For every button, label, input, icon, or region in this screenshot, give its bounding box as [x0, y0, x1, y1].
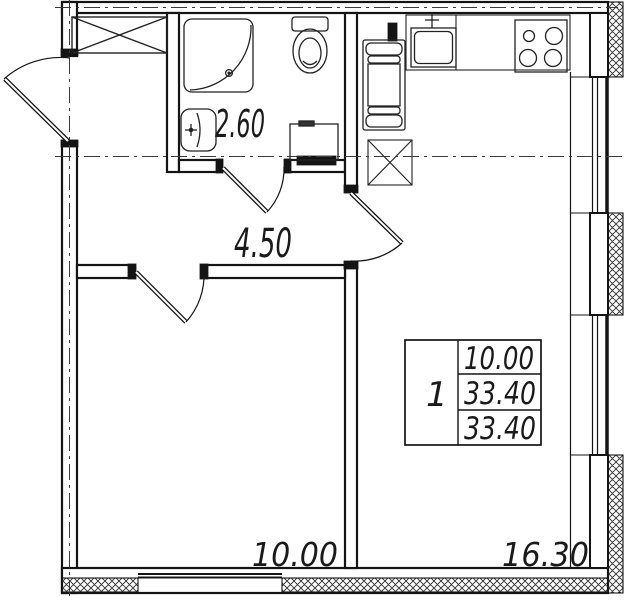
kitchen-living-area-label: 16.30 [502, 535, 589, 574]
bathroom-area-label: 2.60 [215, 102, 265, 146]
living-partition-lower [345, 262, 357, 568]
washing-machine [290, 121, 338, 160]
right-wall-pier-top [590, 13, 608, 77]
bedroom-door-swing [186, 272, 204, 322]
toilet-bowl-inner [299, 38, 321, 68]
vent-shaft [368, 140, 412, 185]
door-jamb-cap [344, 261, 358, 269]
refrigerator [363, 40, 405, 130]
spec-row-value: 33.40 [464, 376, 536, 412]
room-labels: 2.60 4.50 10.00 16.30 [215, 102, 589, 574]
washbasin-tap-dot [189, 128, 192, 131]
stove [515, 20, 567, 72]
windows [138, 72, 607, 578]
kitchen-door-leaf [351, 193, 402, 243]
door-jamb-cap [128, 264, 136, 279]
refrigerator-outline [363, 40, 405, 130]
bathroom-left-wall [167, 13, 179, 172]
door-jamb-cap [284, 159, 291, 173]
hallway-wall-left [77, 265, 135, 278]
stove-burner [545, 50, 562, 67]
right-wall-pier-bottom [590, 455, 608, 568]
floor-plan-drawing: 2.60 4.50 10.00 16.30 1 10.00 33.40 33.4… [0, 0, 627, 600]
right-wall-hatch-middle [608, 213, 623, 315]
kitchen-partition-upper [345, 13, 357, 192]
hallway-area-label: 4.50 [234, 221, 292, 267]
bathroom-bottom-wall-left [179, 160, 222, 172]
bathroom-door-leaf [223, 168, 267, 212]
sink-outline [411, 28, 456, 67]
refrigerator-bar [368, 107, 400, 114]
entrance-door [4, 57, 70, 141]
refrigerator-body [368, 64, 400, 106]
kitchen-sink [411, 13, 456, 67]
room-area-label: 10.00 [252, 535, 338, 574]
spec-row-value: 33.40 [464, 411, 536, 447]
bottom-wall-hatch-left [62, 578, 138, 592]
kitchen-door [351, 193, 402, 261]
shower-tray [184, 19, 253, 92]
interior-walls [61, 13, 397, 568]
floor-plan: 2.60 4.50 10.00 16.30 1 10.00 33.40 33.4… [0, 0, 627, 600]
door-jamb-cap [344, 185, 358, 193]
refrigerator-bar [366, 115, 402, 127]
axis-lines [55, 0, 627, 596]
right-wall-hatch-top [608, 2, 623, 77]
shower-front-arc [190, 25, 251, 90]
stove-burner [520, 50, 537, 67]
spec-row-value: 10.00 [464, 341, 534, 377]
washing-machine-panel [299, 121, 314, 126]
refrigerator-bar [366, 43, 402, 55]
spec-rooms-count: 1 [426, 375, 448, 415]
stove-burner [524, 31, 535, 42]
entrance-door-leaf [5, 79, 68, 141]
shower-outline [184, 19, 253, 92]
kitchen-door-swing [351, 243, 402, 261]
bedroom-door-leaf [136, 272, 186, 322]
refrigerator-bar [368, 56, 400, 63]
closet [72, 17, 167, 53]
door-jamb-cap [216, 159, 223, 173]
spec-table: 1 10.00 33.40 33.40 [405, 340, 541, 447]
bedroom-door [136, 272, 204, 322]
shower-drain-dot [228, 72, 230, 74]
right-wall-pier-middle [590, 213, 608, 315]
stove-burner [546, 28, 563, 45]
washing-machine-body [290, 124, 338, 160]
entrance-door-swing [4, 57, 70, 79]
right-wall-hatch-bottom [608, 455, 623, 593]
washbasin-bowl [197, 113, 200, 147]
sink-bowl [415, 32, 453, 64]
toilet-bowl-detail [303, 61, 317, 65]
washbasin [181, 109, 216, 151]
exterior-walls [62, 2, 623, 593]
bathroom-door [223, 167, 284, 212]
kitchen-wall-stub [388, 23, 397, 41]
toilet-bowl [293, 29, 327, 73]
bottom-wall-hatch-right [282, 578, 608, 592]
toilet [292, 17, 328, 73]
bathroom-door-swing [267, 167, 284, 212]
